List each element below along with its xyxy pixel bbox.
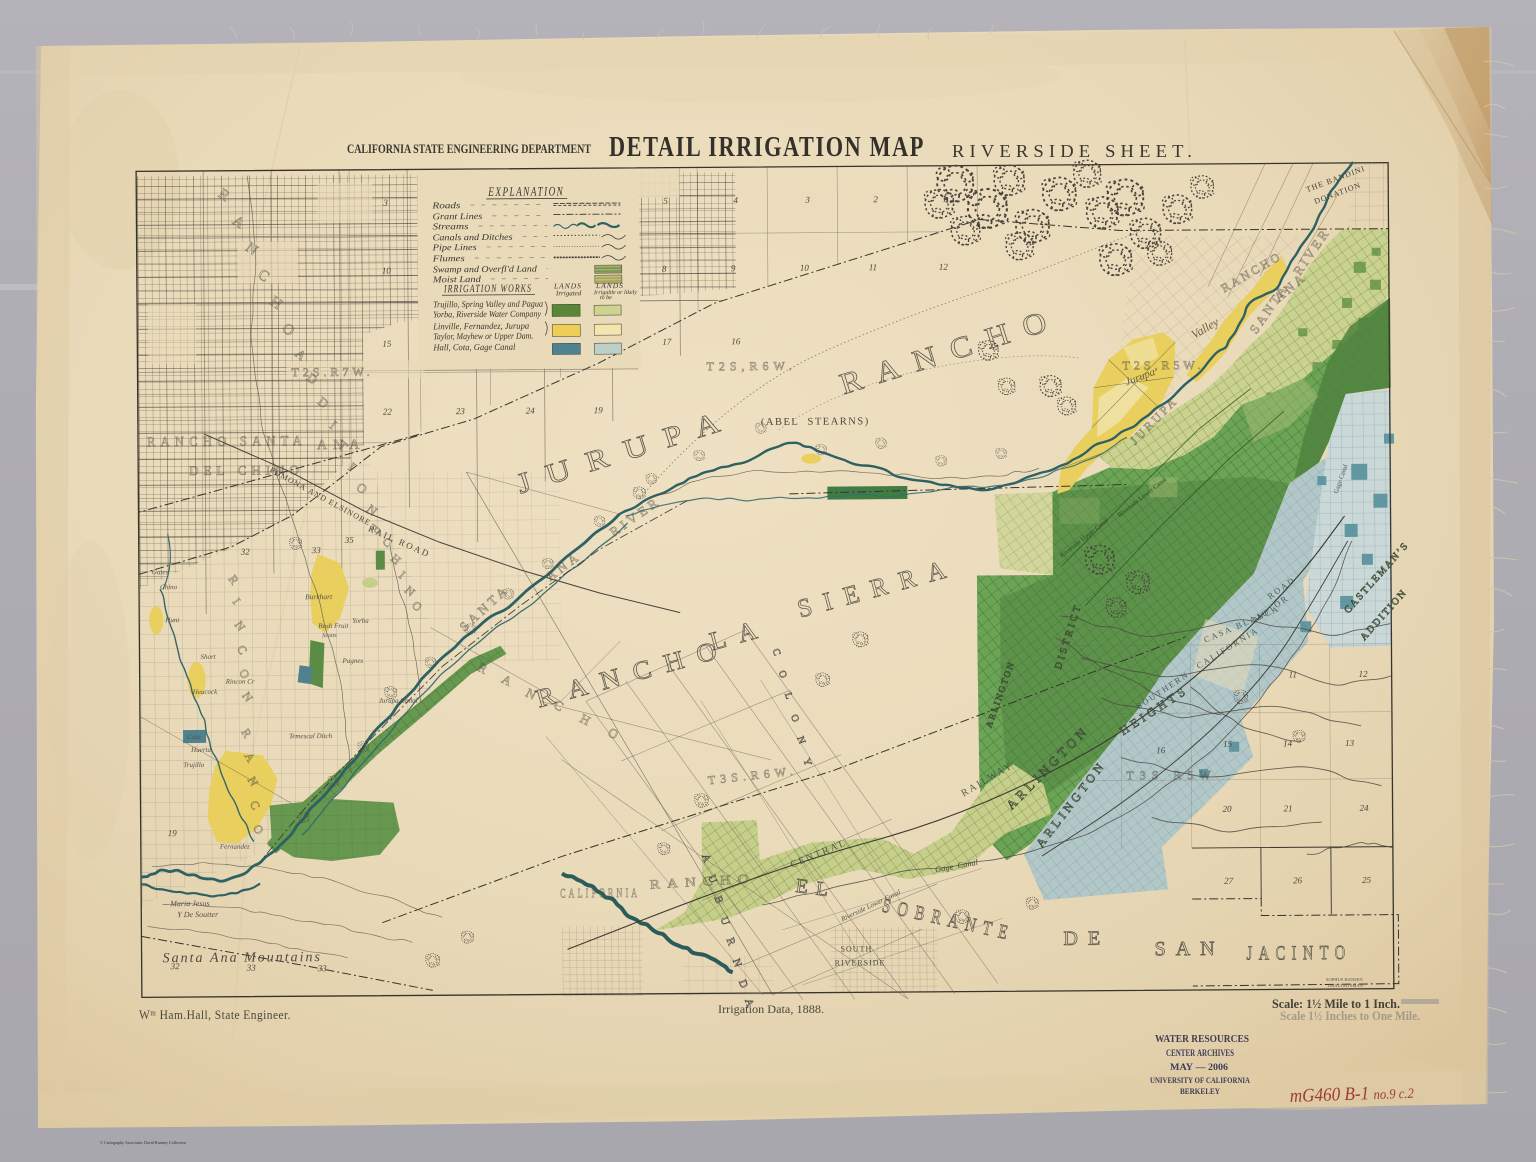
svg-text:15: 15 bbox=[382, 339, 392, 349]
svg-text:9: 9 bbox=[731, 263, 736, 273]
svg-text:25: 25 bbox=[1362, 875, 1372, 885]
svg-text:DETAIL IRRIGATION MAP: DETAIL IRRIGATION MAP bbox=[609, 132, 925, 163]
svg-text:LANDS: LANDS bbox=[595, 281, 624, 290]
svg-text:3: 3 bbox=[804, 195, 810, 205]
svg-text:4: 4 bbox=[733, 195, 738, 205]
svg-text:Canals and Ditches: Canals and Ditches bbox=[433, 232, 514, 243]
svg-text:Trujillo: Trujillo bbox=[183, 761, 205, 769]
svg-text:13: 13 bbox=[1345, 738, 1355, 748]
svg-text:RIVERSIDE: RIVERSIDE bbox=[835, 958, 886, 967]
svg-text:14: 14 bbox=[1283, 738, 1293, 748]
svg-text:T2S.R7W.: T2S.R7W. bbox=[291, 365, 373, 380]
svg-text:22: 22 bbox=[383, 407, 393, 417]
svg-text:12: 12 bbox=[939, 262, 949, 272]
svg-text:35: 35 bbox=[344, 535, 355, 545]
svg-text:WATER RESOURCES: WATER RESOURCES bbox=[1155, 1033, 1249, 1045]
svg-text:21: 21 bbox=[1284, 803, 1293, 813]
svg-text:Bush Fruit: Bush Fruit bbox=[318, 622, 349, 630]
svg-text:Scotts: Scotts bbox=[322, 633, 337, 639]
svg-text:Burkhart: Burkhart bbox=[305, 592, 333, 601]
svg-text:Temescal Ditch: Temescal Ditch bbox=[289, 732, 333, 740]
svg-text:Scale 1½ Inches to One Mile.: Scale 1½ Inches to One Mile. bbox=[1280, 1009, 1420, 1023]
svg-text:Irrigated: Irrigated bbox=[555, 289, 582, 297]
svg-text:Maria Jesus: Maria Jesus bbox=[169, 899, 209, 908]
svg-text:10: 10 bbox=[382, 266, 392, 276]
svg-text:26: 26 bbox=[1293, 875, 1303, 885]
svg-text:BERKELEY: BERKELEY bbox=[1180, 1086, 1220, 1096]
svg-text:33: 33 bbox=[246, 963, 257, 973]
svg-text:Wᵐ Ham.Hall, State Engineer.: Wᵐ Ham.Hall, State Engineer. bbox=[139, 1007, 291, 1022]
svg-text:T3S R5W: T3S R5W bbox=[1126, 768, 1216, 783]
svg-text:32: 32 bbox=[240, 547, 251, 557]
svg-text:Pagnes: Pagnes bbox=[342, 657, 364, 665]
svg-text:Hall, Cota, Gage Canal: Hall, Cota, Gage Canal bbox=[432, 342, 515, 353]
svg-text:DE: DE bbox=[1063, 928, 1110, 950]
svg-text:to be: to be bbox=[600, 295, 612, 301]
svg-text:Short: Short bbox=[200, 653, 216, 661]
svg-text:16: 16 bbox=[1156, 745, 1166, 755]
svg-text:CENTER ARCHIVES: CENTER ARCHIVES bbox=[1166, 1048, 1234, 1058]
svg-text:Gates: Gates bbox=[152, 568, 169, 576]
svg-text:Jurupa Canal: Jurupa Canal bbox=[379, 696, 418, 704]
svg-text:24: 24 bbox=[1360, 803, 1370, 813]
svg-text:CALIFORNIA STATE ENGINEERING D: CALIFORNIA STATE ENGINEERING DEPARTMENT bbox=[347, 141, 591, 156]
svg-text:DRAUGHTSMAN: DRAUGHTSMAN bbox=[1328, 983, 1364, 988]
svg-text:Rincon Cr: Rincon Cr bbox=[225, 678, 255, 686]
svg-text:Chino: Chino bbox=[160, 583, 178, 591]
svg-text:11: 11 bbox=[1289, 669, 1297, 679]
svg-text:12: 12 bbox=[1359, 669, 1369, 679]
svg-text:Irrigation Data, 1888.: Irrigation Data, 1888. bbox=[718, 1002, 824, 1016]
svg-text:5: 5 bbox=[663, 196, 668, 206]
svg-text:SOPHUS HANSEN: SOPHUS HANSEN bbox=[1326, 977, 1363, 982]
svg-text:Pipe Lines: Pipe Lines bbox=[431, 242, 477, 252]
svg-text:Heacock: Heacock bbox=[192, 688, 218, 696]
svg-text:1: 1 bbox=[942, 194, 947, 204]
svg-text:RIVERSIDE SHEET.: RIVERSIDE SHEET. bbox=[952, 141, 1197, 161]
svg-text:10: 10 bbox=[800, 263, 810, 273]
svg-text:23: 23 bbox=[456, 406, 466, 416]
svg-text:IRRIGATION WORKS: IRRIGATION WORKS bbox=[443, 283, 532, 296]
svg-text:RANCHO SANTA: RANCHO SANTA bbox=[147, 434, 307, 450]
svg-text:CALIFORNIA: CALIFORNIA bbox=[560, 885, 640, 901]
svg-text:Roads: Roads bbox=[431, 200, 461, 210]
svg-text:(ABEL STEARNS): (ABEL STEARNS) bbox=[761, 416, 870, 428]
svg-text:UNIVERSITY OF CALIFORNIA: UNIVERSITY OF CALIFORNIA bbox=[1150, 1075, 1251, 1085]
svg-text:Huerta: Huerta bbox=[190, 746, 211, 754]
svg-text:Y De Soutter: Y De Soutter bbox=[177, 910, 219, 919]
svg-text:19: 19 bbox=[594, 405, 604, 415]
svg-text:Fernandez: Fernandez bbox=[219, 843, 250, 851]
svg-text:T2S,R6W.: T2S,R6W. bbox=[706, 359, 796, 374]
svg-text:11: 11 bbox=[869, 262, 877, 272]
svg-text:2: 2 bbox=[873, 194, 878, 204]
svg-text:JACINTO: JACINTO bbox=[1247, 942, 1352, 965]
svg-text:Yorba: Yorba bbox=[352, 617, 369, 625]
svg-text:17: 17 bbox=[662, 337, 672, 347]
svg-text:Swamp and Overfl'd Land: Swamp and Overfl'd Land bbox=[433, 264, 538, 275]
svg-text:ANA: ANA bbox=[317, 438, 365, 453]
svg-text:T2S,R5W.: T2S,R5W. bbox=[1122, 358, 1204, 373]
svg-text:15: 15 bbox=[1223, 739, 1233, 749]
svg-text:EXPLANATION: EXPLANATION bbox=[487, 183, 564, 199]
svg-text:Streams: Streams bbox=[432, 221, 469, 231]
svg-text:Santa Ana Mountains: Santa Ana Mountains bbox=[163, 950, 322, 966]
svg-text:19: 19 bbox=[168, 828, 178, 838]
svg-text:Yorba, Riverside Water Company: Yorba, Riverside Water Company bbox=[433, 309, 541, 320]
svg-text:SAN: SAN bbox=[1154, 938, 1224, 960]
svg-text:SOUTH: SOUTH bbox=[841, 944, 873, 953]
svg-text:MAY –– 2006: MAY –– 2006 bbox=[1170, 1062, 1229, 1072]
svg-text:24: 24 bbox=[526, 406, 536, 416]
svg-text:Hunt: Hunt bbox=[164, 616, 180, 624]
svg-text:33: 33 bbox=[311, 545, 322, 555]
svg-text:16: 16 bbox=[731, 336, 741, 346]
svg-text:27: 27 bbox=[1224, 876, 1234, 886]
svg-text:33: 33 bbox=[317, 963, 328, 973]
svg-text:3: 3 bbox=[382, 198, 388, 208]
svg-text:Linville, Fernandez, Jurupa: Linville, Fernandez, Jurupa bbox=[432, 321, 529, 332]
svg-text:32: 32 bbox=[170, 961, 181, 971]
svg-text:Flumes: Flumes bbox=[431, 253, 465, 263]
svg-text:8: 8 bbox=[662, 264, 667, 274]
svg-text:Taylor, Mayhew or Upper Dam.: Taylor, Mayhew or Upper Dam. bbox=[433, 331, 533, 342]
svg-text:Grant Lines: Grant Lines bbox=[432, 211, 483, 221]
svg-text:20: 20 bbox=[1223, 804, 1233, 814]
svg-text:Cota: Cota bbox=[187, 733, 201, 741]
